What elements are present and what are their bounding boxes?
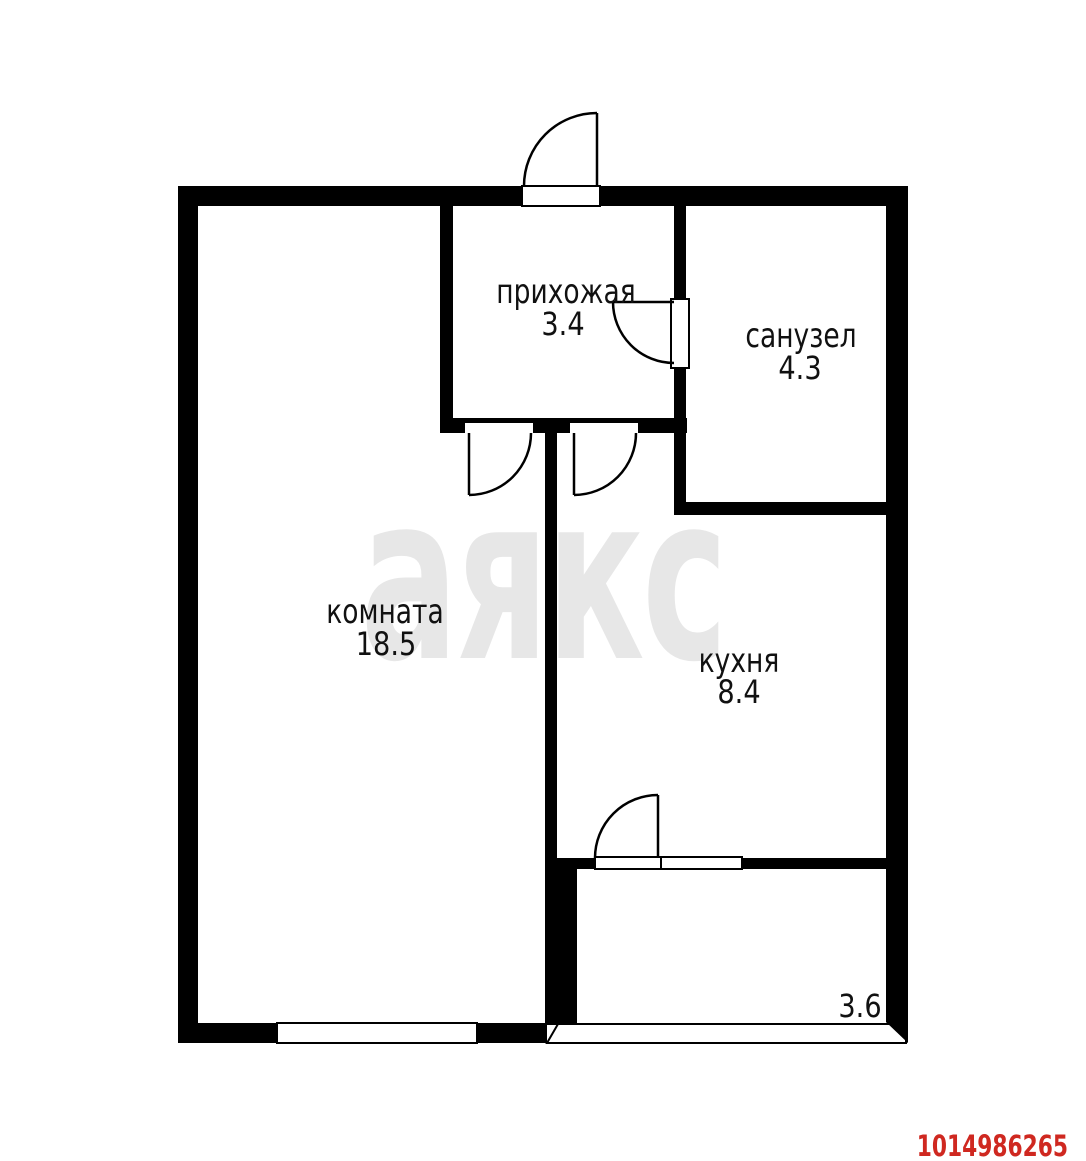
wall-bottom-left — [178, 1023, 277, 1043]
wall-kitchen-bottom-right — [742, 858, 888, 869]
floor-plan: аякс — [0, 0, 1086, 1161]
wall-bathroom-left-upper — [674, 206, 686, 299]
living-room-door-gap — [465, 423, 533, 434]
living-room-area: 18.5 — [356, 626, 417, 664]
listing-id: 1014986265 — [917, 1130, 1068, 1161]
floor-plan-page: аякс — [0, 0, 1086, 1161]
kitchen-door-gap — [570, 423, 638, 434]
balcony-area: 3.6 — [838, 988, 881, 1026]
wall-kitchen-bottom-left — [545, 858, 595, 869]
wall-hallway-left — [440, 206, 453, 418]
wall-left — [178, 186, 198, 1043]
balcony-door-window-unit — [595, 857, 742, 869]
agency-watermark: аякс — [361, 446, 726, 713]
balcony-floor-strip — [547, 1024, 906, 1043]
wall-top-left — [178, 186, 522, 206]
entry-door-threshold — [522, 186, 600, 206]
kitchen-area: 8.4 — [717, 674, 760, 712]
wall-bathroom-bottom — [674, 502, 888, 515]
bathroom-door-threshold — [671, 299, 689, 368]
hallway-area: 3.4 — [541, 306, 584, 344]
living-room-window — [277, 1023, 477, 1043]
wall-bathroom-left-lower — [674, 368, 686, 502]
wall-top-right — [600, 186, 908, 206]
wall-balcony-divider-block — [545, 858, 577, 1025]
wall-right — [886, 186, 908, 1043]
bathroom-area: 4.3 — [778, 350, 821, 388]
wall-room-kitchen-divider — [545, 418, 557, 860]
wall-bottom-center — [477, 1023, 547, 1043]
